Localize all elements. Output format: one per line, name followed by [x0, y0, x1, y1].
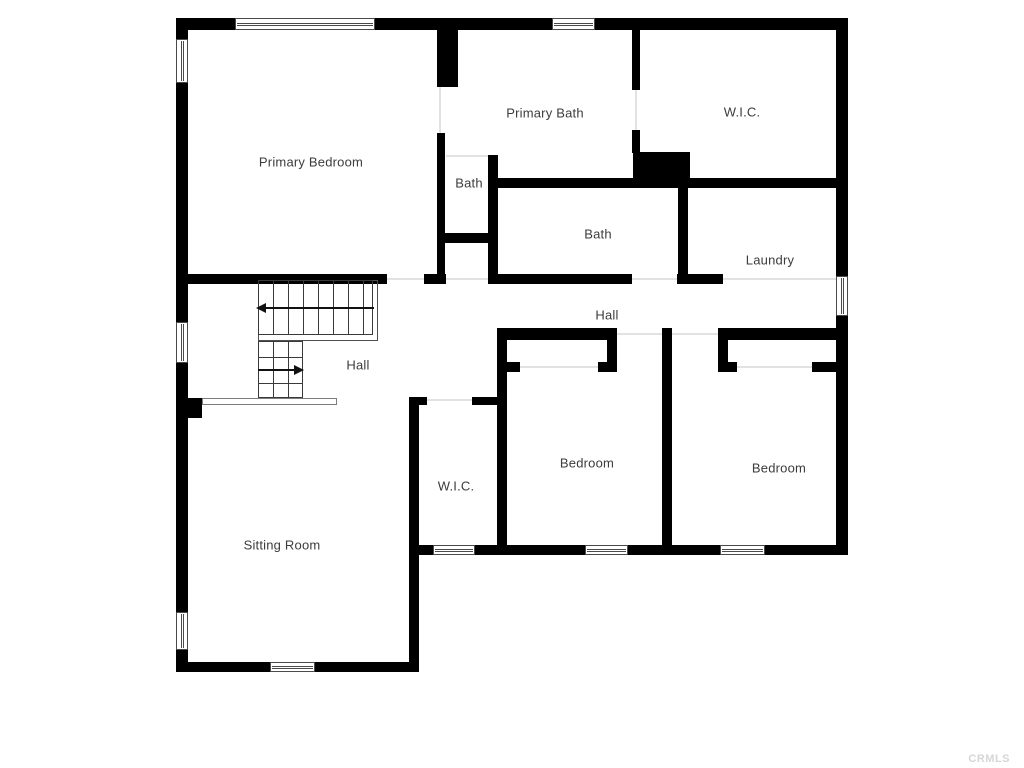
- room-label-hall-upper: Hall: [595, 308, 618, 323]
- door-opening-small-bath: [446, 155, 488, 157]
- window-primary-bedroom-left: [176, 39, 188, 83]
- closet-opening-bedroom1: [520, 366, 598, 368]
- window-sitting-left: [176, 612, 188, 650]
- door-opening-bedroom2: [672, 333, 718, 335]
- door-opening-primary-bedroom: [387, 278, 424, 280]
- room-label-bath-hall: Bath: [584, 227, 612, 242]
- window-hall-left: [176, 322, 188, 363]
- room-label-bedroom-middle: Bedroom: [560, 456, 614, 471]
- window-primary-bath-top: [552, 18, 595, 30]
- stair-direction-arrow-up-head: [256, 303, 266, 313]
- wall-bedroom1-closet-stub-left: [497, 362, 520, 372]
- door-opening-primary-bath: [439, 87, 441, 133]
- stair-direction-arrow-up-line: [264, 307, 374, 309]
- wall-wic-bedroom-top-left: [409, 397, 427, 405]
- room-label-wic-bedroom: W.I.C.: [438, 479, 475, 494]
- closet-opening-bedroom2: [737, 366, 812, 368]
- wall-hall-b: [424, 274, 446, 284]
- stair-direction-arrow-low-head: [294, 365, 304, 375]
- door-opening-wic-primary: [635, 90, 637, 130]
- window-bedroom2-bottom: [720, 545, 765, 555]
- room-label-hall-stairs: Hall: [346, 358, 369, 373]
- crmls-watermark: CRMLS: [968, 753, 1010, 765]
- wall-laundry-divider: [678, 183, 688, 284]
- door-opening-wic-bedroom: [427, 399, 472, 401]
- wall-sitting-right: [409, 397, 419, 672]
- door-opening-linen: [446, 278, 488, 280]
- room-label-primary-bedroom: Primary Bedroom: [259, 155, 363, 170]
- wall-wic-bedroom-top-right: [472, 397, 497, 405]
- wall-small-bath-right: [488, 155, 498, 284]
- window-primary-bedroom-top: [235, 18, 375, 30]
- wall-primary-bath-stub: [437, 20, 458, 87]
- room-label-bath-primary: Bath: [455, 176, 483, 191]
- wall-primary-bath-divider: [437, 133, 445, 284]
- wall-wic-divider-upper: [632, 30, 640, 90]
- floorplan-canvas: Primary Bedroom Primary Bath W.I.C. Bath…: [0, 0, 1024, 768]
- wall-bedroom2-closet-stub-left: [718, 362, 737, 372]
- wall-left-pier-block: [176, 398, 202, 418]
- stair-landing-ledge: [202, 398, 337, 405]
- stair-direction-arrow-low-line: [258, 369, 296, 371]
- door-opening-bedroom1: [617, 333, 662, 335]
- wall-bedroom1-top: [497, 328, 617, 340]
- window-sitting-bottom: [270, 662, 315, 672]
- wall-bedroom2-top: [718, 328, 840, 340]
- room-label-sitting-room: Sitting Room: [244, 538, 321, 553]
- wall-small-bath-bottom: [437, 233, 498, 243]
- wall-hall-d: [677, 274, 723, 284]
- wall-between-bedrooms: [662, 328, 672, 555]
- window-bedroom1-bottom: [585, 545, 628, 555]
- window-wic-bedroom-bottom: [433, 545, 475, 555]
- wall-bedroom2-closet-stub-right: [812, 362, 848, 372]
- door-opening-laundry: [723, 278, 836, 280]
- window-laundry-right: [836, 276, 848, 316]
- wall-hall-c: [488, 274, 632, 284]
- door-opening-hall-bath: [632, 278, 677, 280]
- room-label-laundry: Laundry: [746, 253, 794, 268]
- wall-wic-divider-lower: [632, 130, 640, 153]
- wall-bedroom1-closet-stub-right: [598, 362, 617, 372]
- room-label-primary-bath: Primary Bath: [506, 106, 584, 121]
- room-label-wic-primary: W.I.C.: [724, 105, 761, 120]
- room-label-bedroom-right: Bedroom: [752, 461, 806, 476]
